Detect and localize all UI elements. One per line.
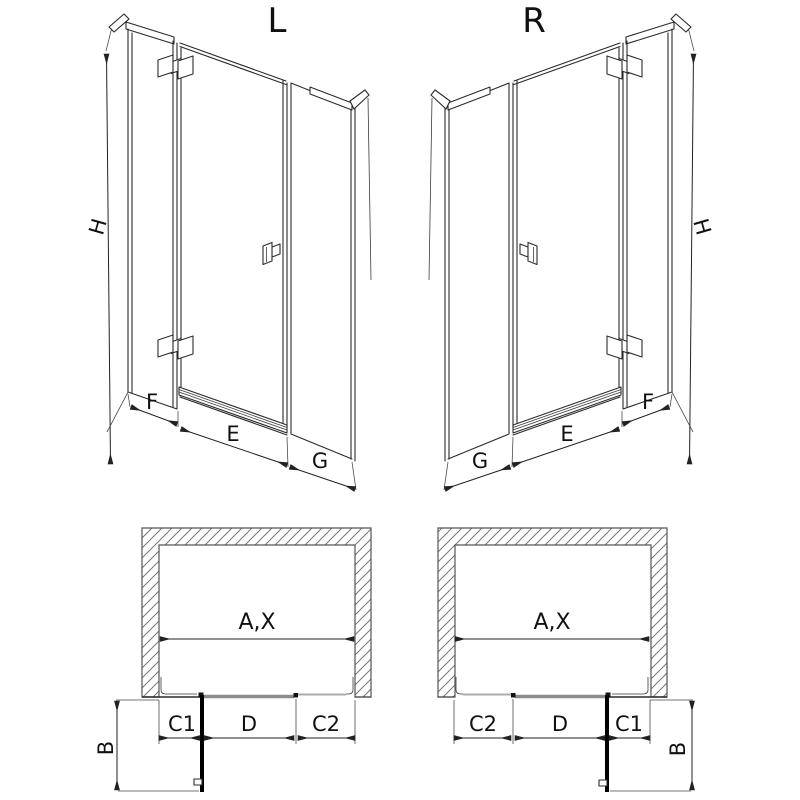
view-3d-left-geometry [106, 14, 371, 490]
height-dimension-line [107, 54, 111, 464]
label-return-panel-right: G [472, 449, 488, 473]
label-door-width-left: E [226, 422, 239, 446]
shower-door-technical-diagram: L R H F E G H F E G A,X C1 D C2 B A,X C2… [0, 0, 800, 800]
hinge-bottom [158, 335, 193, 359]
label-fixed-panel-right: F [642, 390, 654, 414]
variant-title-right: R [522, 1, 546, 41]
wall-bracket-side [350, 90, 369, 109]
variant-title-left: L [268, 1, 287, 41]
label-c1-right-plan: C1 [615, 712, 643, 736]
label-c2-right-plan: C2 [469, 712, 497, 736]
diagram-page: L R H F E G H F E G A,X C1 D C2 B A,X C2… [0, 0, 800, 800]
latch-point [294, 693, 299, 698]
view-3d-right-geometry [429, 14, 694, 490]
label-door-width-right: E [560, 422, 573, 446]
label-total-width-right-plan: A,X [533, 610, 570, 635]
plan-door-handle-left [194, 779, 202, 785]
return-panel-g [291, 83, 355, 461]
top-support-bar [126, 22, 174, 44]
label-depth-left-plan: B [94, 741, 118, 755]
label-c2-left-plan: C2 [312, 712, 340, 736]
label-d-right-plan: D [552, 712, 568, 736]
door-handle [263, 243, 280, 265]
plan-door-handle-right [599, 780, 607, 786]
label-d-left-plan: D [241, 712, 257, 736]
label-c1-left-plan: C1 [168, 712, 196, 736]
label-total-width-left-plan: A,X [238, 610, 275, 635]
label-return-panel-left: G [312, 449, 328, 473]
label-fixed-panel-left: F [146, 390, 158, 414]
hinge-top [158, 55, 193, 79]
label-depth-right-plan: B [666, 742, 690, 756]
door-panel-e [180, 43, 287, 435]
